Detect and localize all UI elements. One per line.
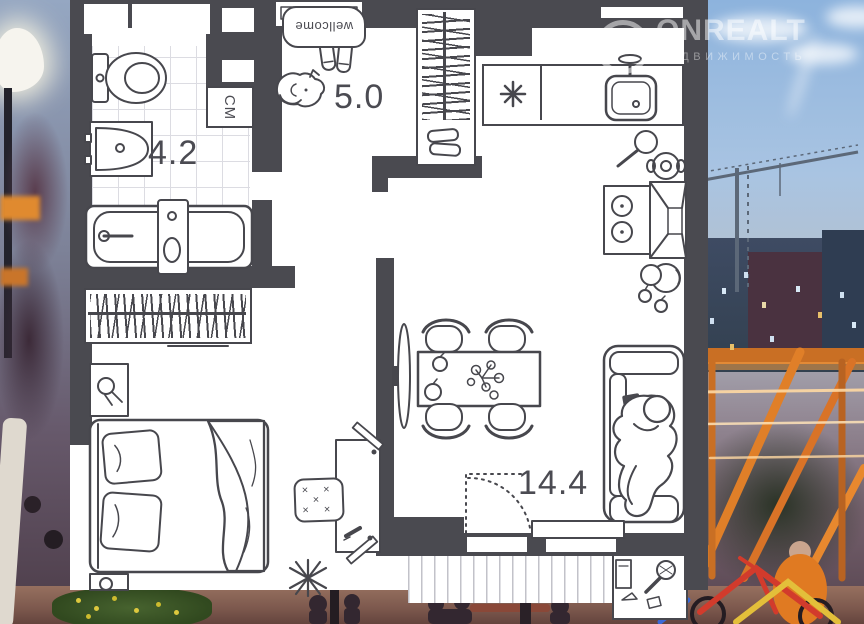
wall-right (684, 0, 708, 590)
pouf-marks: × × (302, 504, 336, 515)
watermark-logo-icon: ⌂ (596, 20, 650, 74)
watermark: ⌂ ONREALT НЕДВИЖИМОСТЬ (596, 14, 852, 76)
doormat-label: wellcome (295, 20, 353, 35)
wall-bathroom-right-lower (252, 200, 272, 270)
balcony-decking (408, 553, 612, 603)
wardrobe (84, 288, 252, 344)
wall-hallway-notch (372, 178, 388, 192)
living-area-label: 14.4 (518, 464, 588, 503)
balcony-window-sill (546, 539, 616, 552)
kitchen-counter-divider (540, 66, 542, 120)
lit-signage (0, 268, 28, 286)
wardrobe-hangers-icon (90, 294, 246, 338)
closet-rod (443, 12, 446, 120)
person-head (44, 530, 63, 549)
doormat: wellcome (282, 6, 366, 48)
bedroom-floor-extension (70, 556, 408, 590)
hallway-area-label: 5.0 (334, 78, 384, 117)
washing-machine: СМ (206, 86, 254, 128)
wall-mid-vertical (376, 258, 394, 520)
washing-machine-label: СМ (221, 94, 238, 119)
bathroom-area-label: 4.2 (148, 134, 198, 173)
balcony-window-sill (467, 537, 527, 552)
yellow-flowers (76, 598, 81, 603)
closet-hangers-icon (422, 14, 470, 120)
hall-closet (416, 8, 476, 126)
watermark-brand: ONREALT (656, 14, 806, 48)
wall-bathroom-bottom (70, 266, 295, 288)
wardrobe-rod (88, 312, 246, 315)
building-block (748, 252, 826, 348)
vent-shaft (132, 4, 210, 34)
vent-shaft (84, 4, 128, 34)
vent-shaft (222, 8, 254, 32)
tree-trunk (330, 588, 339, 624)
lit-signage (0, 196, 40, 220)
watermark-subtitle: НЕДВИЖИМОСТЬ (657, 51, 806, 63)
person-head (24, 496, 41, 513)
dark-foliage (688, 420, 864, 590)
wall-bottom-left-piece (376, 517, 464, 556)
screenshot-root: 4.2 5.0 14.4 СМ wellcome × × × × × ⌂ ONR… (0, 0, 864, 624)
vent-shaft (222, 60, 254, 82)
balcony-room (612, 553, 688, 620)
wall-left (70, 0, 92, 445)
shoe-compartment (416, 122, 476, 166)
bush (52, 588, 212, 624)
wall-kitchen-corner (476, 0, 532, 56)
building-block (822, 230, 864, 358)
pouf-icon: × × × × × (293, 477, 345, 523)
